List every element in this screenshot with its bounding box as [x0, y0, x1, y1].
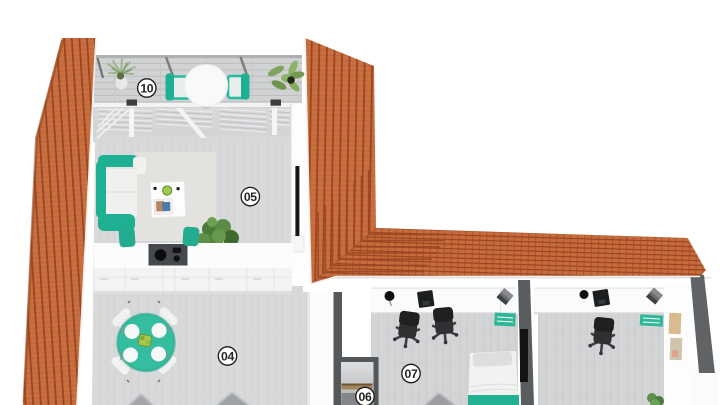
svg-text:07: 07	[405, 367, 418, 381]
svg-text:06: 06	[359, 390, 372, 404]
svg-text:04: 04	[221, 350, 234, 364]
svg-text:05: 05	[244, 190, 257, 204]
svg-text:10: 10	[140, 82, 153, 96]
